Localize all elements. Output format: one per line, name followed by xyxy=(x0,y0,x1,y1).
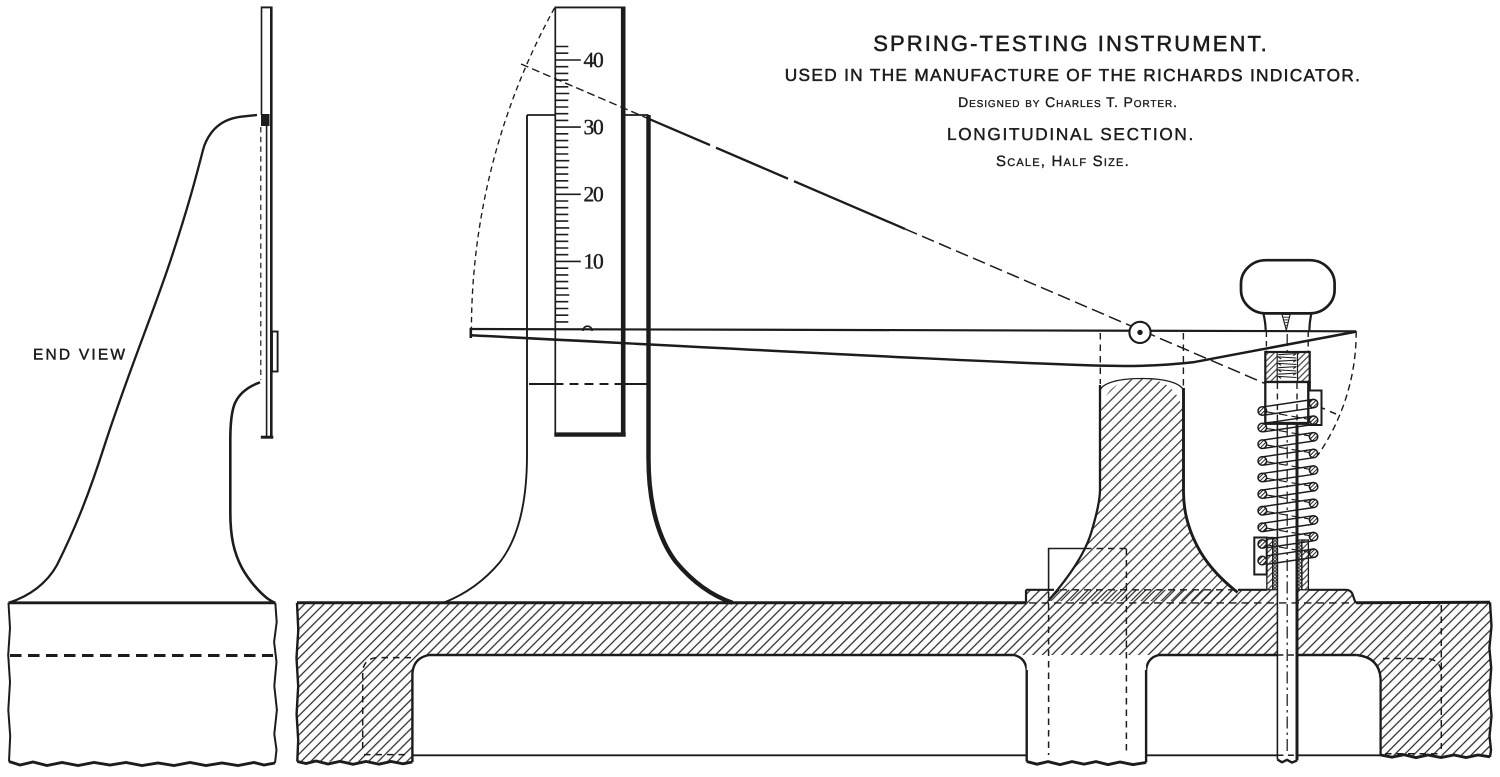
svg-text:LONGITUDINAL SECTION.: LONGITUDINAL SECTION. xyxy=(947,124,1195,144)
svg-text:30: 30 xyxy=(583,115,603,139)
svg-text:40: 40 xyxy=(583,48,603,72)
svg-text:10: 10 xyxy=(583,249,603,273)
svg-text:USED IN THE MANUFACTURE OF THE: USED IN THE MANUFACTURE OF THE RICHARDS … xyxy=(785,65,1361,85)
svg-text:END VIEW: END VIEW xyxy=(33,347,127,364)
svg-text:Scale, Half Size.: Scale, Half Size. xyxy=(996,153,1130,170)
svg-text:Designed by Charles T. Porter.: Designed by Charles T. Porter. xyxy=(958,94,1178,110)
svg-text:SPRING-TESTING INSTRUMENT.: SPRING-TESTING INSTRUMENT. xyxy=(873,31,1269,56)
svg-text:20: 20 xyxy=(583,182,603,206)
